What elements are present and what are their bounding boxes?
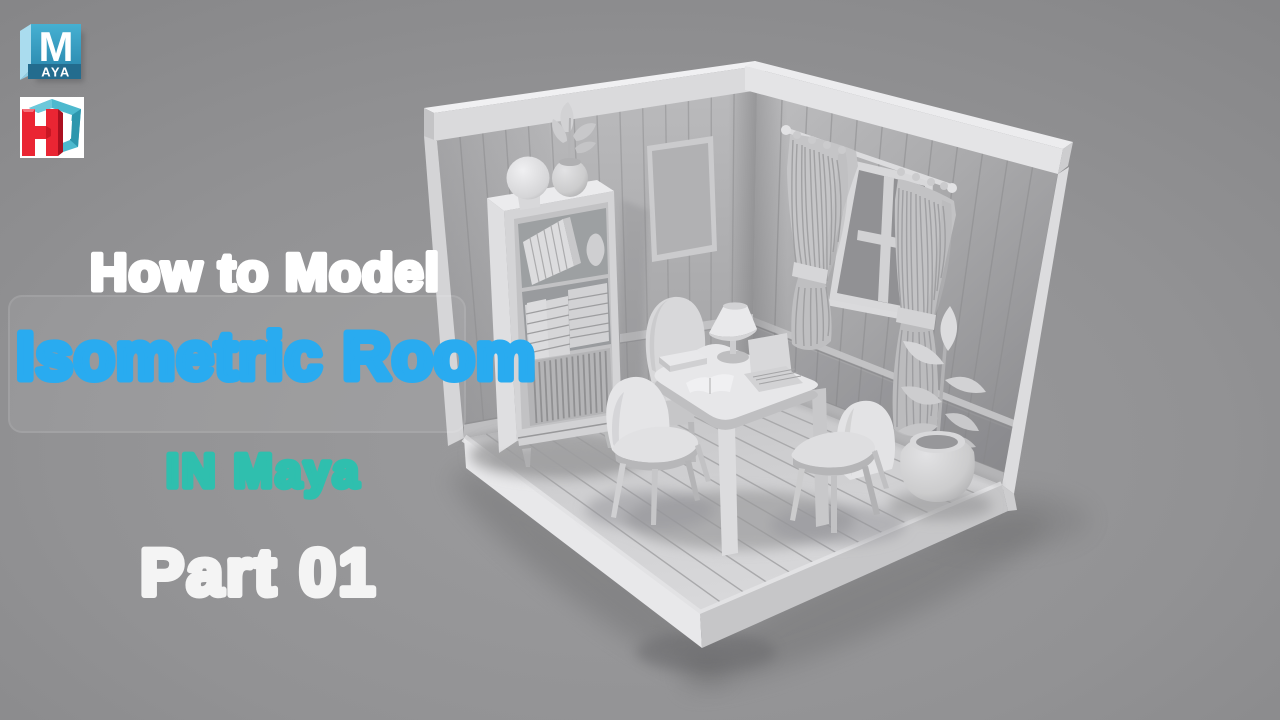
svg-text:M: M	[39, 23, 74, 70]
svg-text:Isometric Room: Isometric Room	[16, 319, 536, 394]
svg-text:AYA: AYA	[41, 65, 71, 80]
svg-text:IN Maya: IN Maya	[166, 444, 361, 497]
svg-text:Part 01: Part 01	[140, 535, 378, 609]
svg-text:How to Model: How to Model	[90, 244, 440, 302]
